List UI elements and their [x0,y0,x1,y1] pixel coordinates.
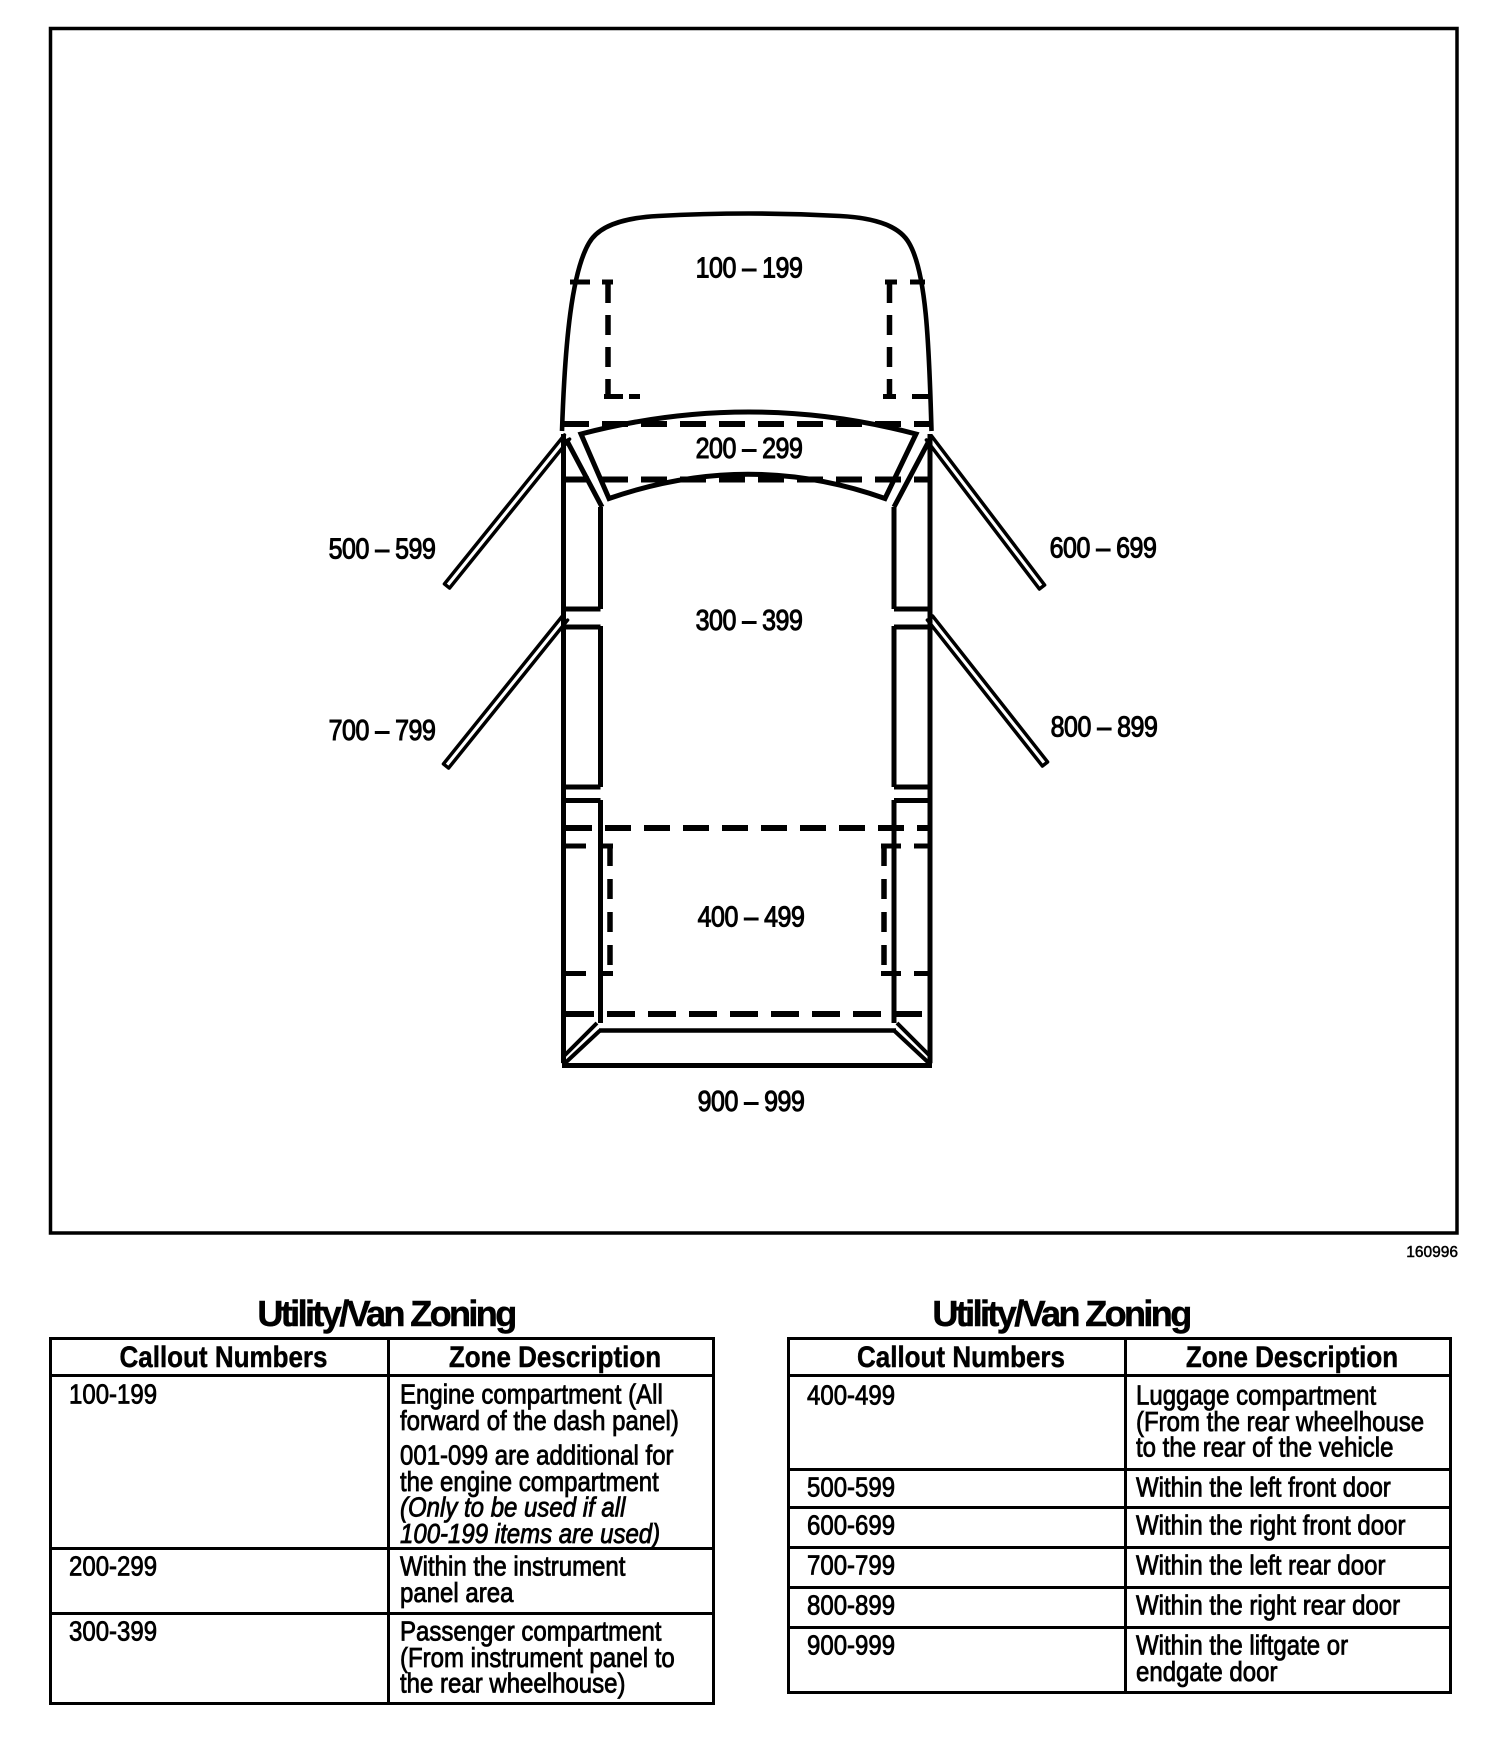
svg-text:600 – 699: 600 – 699 [1050,532,1157,564]
svg-text:900 – 999: 900 – 999 [698,1085,805,1117]
svg-text:700 – 799: 700 – 799 [329,714,436,746]
svg-text:200 – 299: 200 – 299 [696,432,803,464]
svg-text:500 – 599: 500 – 599 [329,533,436,565]
svg-text:400 – 499: 400 – 499 [698,901,805,933]
svg-text:300 – 399: 300 – 399 [696,604,803,636]
svg-text:160996: 160996 [1406,1244,1458,1261]
svg-text:800 – 899: 800 – 899 [1051,711,1158,743]
svg-text:100 – 199: 100 – 199 [696,252,803,284]
